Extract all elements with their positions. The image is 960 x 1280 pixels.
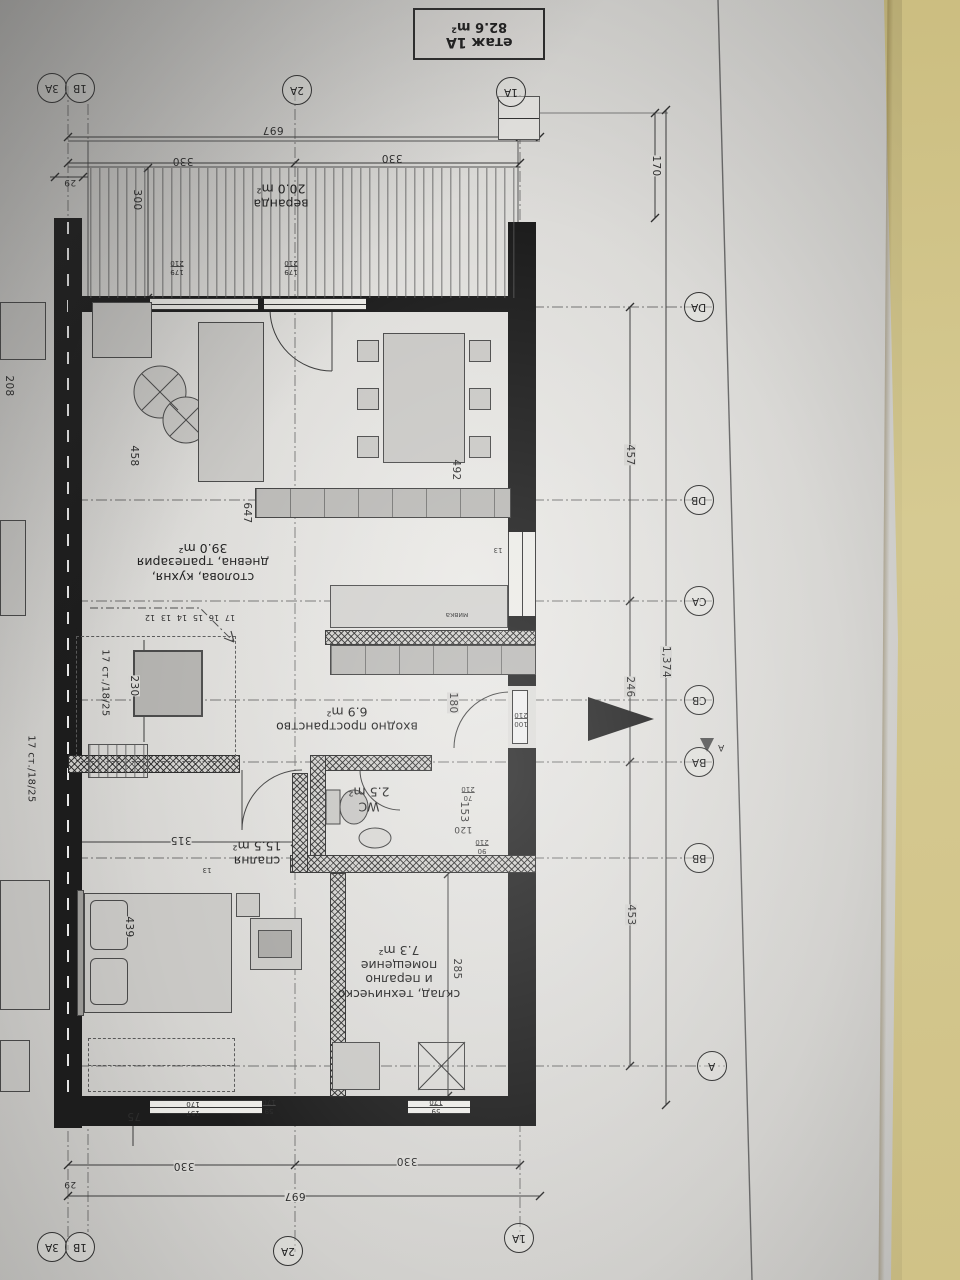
stair-number: 14 (177, 613, 187, 621)
window-size-tag: 59170 (262, 1098, 275, 1114)
dim-storage-285: 285 (451, 958, 463, 979)
dim-living-458: 458 (128, 445, 140, 466)
kitchen-lower-counter (330, 645, 536, 675)
dim-bed-439: 439 (123, 916, 135, 937)
kitchen-back-wall (325, 630, 536, 645)
basin-symbol (359, 828, 391, 848)
room-label-entry: входно пространство6.9 m² (276, 705, 418, 734)
neighbour-bed (0, 880, 50, 1010)
window-size-tag: 179210 (170, 259, 183, 275)
entrance-arrow (588, 697, 654, 741)
grid-bubble-a: A (697, 1051, 727, 1081)
washing-machine (332, 1042, 380, 1090)
kitchen-window (508, 532, 536, 616)
dim-right-total: 1,374 (660, 646, 672, 678)
bedroom-window (150, 1100, 262, 1114)
kitchen-island-counter (255, 488, 511, 518)
chair (469, 340, 491, 362)
room-label-veranda: веранда20.0 m² (253, 182, 308, 211)
desk-monitor (258, 930, 292, 958)
dim-bottom-330-left: 330 (173, 1160, 194, 1172)
dim-bottom-total: 697 (284, 1190, 305, 1202)
chair (357, 436, 379, 458)
bedroom-right-stub-wall (292, 773, 308, 873)
grid-bubble-ba: BA (684, 747, 714, 777)
dim-bottom-29: 29 (64, 1179, 76, 1189)
stair-number: 13 (161, 613, 171, 621)
room-label-wc: WC2.5 m² (348, 785, 389, 814)
sink-label: мивка (446, 610, 468, 618)
grid-bubble-1a-bottom: 1А (504, 1223, 534, 1253)
grid-bubble-1b-top: 1В (65, 73, 95, 103)
dining-table (383, 333, 465, 463)
grid-bubble-1b-bottom: 1В (65, 1232, 95, 1262)
grid-bubble-3a-top: 3А (37, 73, 67, 103)
grid-bubble-da: DA (684, 292, 714, 322)
stair-note-left: 17 ст./18/25 (26, 735, 37, 802)
veranda-window-left (150, 298, 258, 310)
dim-wardrobe-75: 75 (127, 1110, 141, 1122)
grid-bubble-bb: BB (684, 843, 714, 873)
dim-hall-120: 120 (454, 824, 472, 834)
window-size-tag: 157170 (186, 1100, 199, 1116)
dim-right-170: 170 (650, 155, 662, 176)
grid-bubble-2a-bottom: 2А (273, 1236, 303, 1266)
wardrobe-divider (88, 1065, 235, 1066)
dim-right-453: 453 (625, 904, 637, 925)
chair (469, 388, 491, 410)
neighbour-furniture (0, 1040, 30, 1092)
bed-headboard (77, 890, 84, 1016)
dim-top-330-left: 330 (172, 155, 193, 167)
room-label-living: столова, кухня,дневна, трапезария39.0 m² (137, 540, 269, 584)
neighbour-furniture (0, 520, 26, 616)
door-size-tag: 70210 (461, 785, 474, 801)
room-label-storage: склад, техническои перално помещение7.3 … (338, 943, 460, 1001)
dim-bedroom-315: 315 (170, 834, 191, 846)
room-label-bedroom: спалня15.5 m² (233, 839, 282, 868)
section-marker-letter: А (718, 742, 725, 752)
chair (357, 388, 379, 410)
kitchen-appliance-row (330, 585, 508, 628)
dim-hall-153: 153 (458, 801, 470, 822)
grid-bubble-db: DB (684, 485, 714, 515)
dim-top-29: 29 (64, 177, 76, 187)
window-size-tag: 59170 (429, 1098, 442, 1114)
veranda-window-right (264, 298, 366, 310)
dim-veranda-depth: 300 (131, 189, 143, 210)
door-size-tag: 90210 (475, 838, 488, 854)
dim-top-total: 697 (262, 124, 283, 136)
sofa (198, 322, 264, 482)
dim-right-246: 246 (624, 676, 636, 697)
dim-neighbour-208: 208 (3, 375, 15, 396)
chair (357, 340, 379, 362)
party-wall-centerline (67, 222, 69, 1124)
dim-bottom-330-right: 330 (396, 1155, 417, 1167)
chair (469, 436, 491, 458)
stair-number: 17 (225, 613, 235, 621)
window-size-tag: 179210 (284, 259, 297, 275)
grid-bubble-2a-top: 2А (282, 75, 312, 105)
stair-number: 15 (193, 613, 203, 621)
boiler-unit (418, 1042, 465, 1090)
wc-top-wall (310, 755, 432, 771)
dim-top-330-right: 330 (381, 152, 402, 164)
stair-number: 16 (209, 613, 219, 621)
dim-right-457: 457 (624, 444, 636, 465)
wall-thickness-13: 13 (203, 865, 212, 873)
grid-bubble-cb: CB (684, 685, 714, 715)
dim-stair-230: 230 (128, 675, 140, 696)
grid-bubble-ca: CA (684, 586, 714, 616)
dim-entry-180: 180 (447, 692, 459, 713)
bb-axis-wall (290, 855, 536, 873)
photo-of-floor-plan: етаж 1А 82.6 m² (0, 0, 960, 1280)
pillow (90, 958, 128, 1005)
wall-thickness-13: 13 (494, 545, 503, 553)
paper-sheet: етаж 1А 82.6 m² (0, 0, 902, 1280)
stair-treads (88, 744, 148, 778)
grid-bubble-1a-top: 1А (496, 77, 526, 107)
stair-note: 17 ст./18/25 (100, 649, 111, 716)
dim-counter-647: 647 (241, 502, 253, 523)
neighbour-furniture (0, 302, 46, 360)
door-size-tag: 100210 (514, 711, 527, 727)
grid-bubble-3a-bottom: 3А (37, 1232, 67, 1262)
stair-number: 12 (145, 613, 155, 621)
nightstand (236, 893, 260, 917)
armchair (92, 302, 152, 358)
wc-left-wall (310, 755, 326, 871)
dim-table-492: 492 (450, 459, 462, 480)
